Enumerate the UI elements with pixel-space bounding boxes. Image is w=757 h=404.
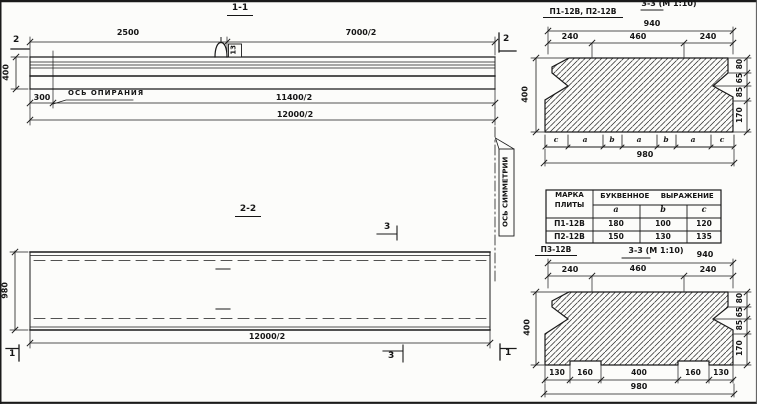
lifting-loop-mark: 13 [231, 43, 239, 56]
dim-980-plan: 980 [2, 275, 11, 305]
symmetry-axis-label: ОСЬ СИММЕТРИИ [503, 149, 511, 234]
dim-460-top-section: 460 [623, 33, 653, 42]
cut-marker-3-top: 3 [384, 223, 390, 233]
cut-marker-2-right: 2 [503, 35, 509, 45]
table-subheader-b: b [653, 205, 673, 214]
dim-2500-label: 2500 [108, 29, 148, 38]
dim-940-top-section: 940 [637, 20, 667, 29]
section-2-2-drawing [6, 127, 516, 362]
table-row1-b: 100 [648, 220, 678, 228]
table-row2-mark: П2-12В [549, 233, 590, 241]
letter-a-1: a [577, 136, 593, 144]
dim-130-right-label: 130 [706, 369, 736, 377]
section-3-3-bottom-plate-mark: П3-12В [535, 246, 577, 256]
section-3-3-top-plate-marks: П1-12В, П2-12В [543, 8, 623, 18]
table-row1-a: 180 [601, 220, 631, 228]
cut-marker-1-left: 1 [9, 350, 15, 360]
dim-130-left-label: 130 [542, 369, 572, 377]
letter-b-1: b [604, 136, 620, 144]
table-row1-c: 120 [689, 220, 719, 228]
table-row2-c: 135 [689, 233, 719, 241]
dim-160-right-label: 160 [678, 369, 708, 377]
dim-400-top-section: 400 [522, 79, 531, 109]
drawing-linework [0, 0, 757, 404]
dim-300-label: 300 [31, 94, 53, 103]
section-1-1-title: 1-1 [227, 4, 253, 16]
table-row1-mark: П1-12В [549, 220, 590, 228]
dim-400-elevation: 400 [3, 57, 12, 87]
cut-marker-3-bottom: 3 [388, 352, 394, 362]
dim-240-left-bottom-section: 240 [555, 266, 585, 275]
section-1-1-drawing [11, 33, 516, 125]
table-subheader-a: a [606, 205, 626, 214]
letter-a-2: a [631, 136, 647, 144]
table-header-mark-line2: ПЛИТЫ [549, 202, 590, 210]
section-3-3-top-title: 3-3 (М 1:10) [633, 0, 705, 9]
blueprint-sheet: 1-1 2500 7000/2 13 2 2 400 300 ОСЬ ОПИРА… [0, 0, 757, 404]
dim-400-bottom-label: 400 [624, 369, 654, 377]
dim-7000-2-label: 7000/2 [336, 29, 386, 38]
dim-160-left-label: 160 [570, 369, 600, 377]
table-row2-a: 150 [601, 233, 631, 241]
dim-240-right-bottom-section: 240 [693, 266, 723, 275]
dim-400-bottom-section: 400 [524, 312, 533, 342]
cut-marker-1-right: 1 [505, 349, 511, 359]
letter-c-2: c [714, 136, 730, 144]
dim-170-top-section: 170 [736, 100, 744, 130]
section-3-3-bottom-title: 3-3 (М 1:10) [620, 247, 692, 256]
dim-11400-2-label: 11400/2 [269, 94, 319, 103]
dim-12000-2-label-plan: 12000/2 [242, 333, 292, 342]
dim-940-bottom-section: 940 [690, 251, 720, 260]
dim-12000-2-label-elevation: 12000/2 [270, 111, 320, 120]
cut-marker-2-left: 2 [13, 36, 19, 46]
dim-980-bottom-section: 980 [624, 383, 654, 392]
section-2-2-title: 2-2 [235, 205, 261, 217]
table-header-expression: БУКВЕННОЕ ВЫРАЖЕНИЕ [595, 193, 719, 201]
letter-b-2: b [658, 136, 674, 144]
table-header-mark-line1: МАРКА [549, 192, 590, 200]
support-axis-label: ОСЬ ОПИРАНИЯ [68, 90, 144, 98]
table-subheader-c: c [694, 205, 714, 214]
dim-460-bottom-section: 460 [623, 265, 653, 274]
table-row2-b: 130 [648, 233, 678, 241]
letter-c-1: c [548, 136, 564, 144]
dim-980-top-section: 980 [630, 151, 660, 160]
dim-170-bottom-section: 170 [736, 333, 744, 363]
dim-240-right-top-section: 240 [693, 33, 723, 42]
letter-a-3: a [685, 136, 701, 144]
dim-240-left-top-section: 240 [555, 33, 585, 42]
